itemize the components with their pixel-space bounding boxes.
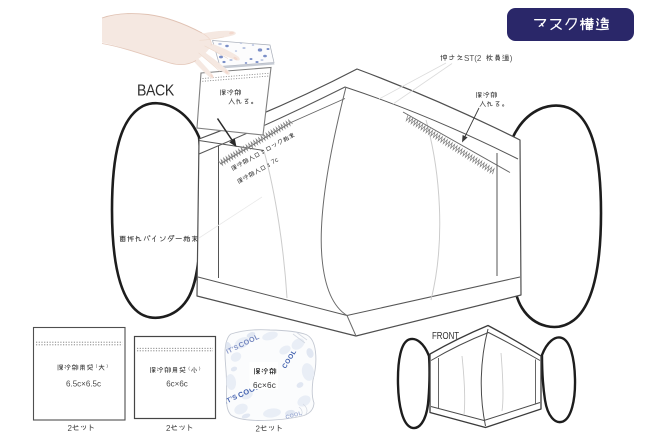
svg-text:ST(2: ST(2 [464, 54, 482, 63]
svg-text:6.5c×6.5c: 6.5c×6.5c [66, 380, 101, 389]
svg-text:BACK: BACK [137, 82, 174, 100]
svg-text:2: 2 [256, 425, 261, 434]
svg-text:2: 2 [68, 424, 73, 433]
svg-text:2: 2 [166, 424, 171, 433]
svg-text:): ) [510, 54, 513, 63]
svg-text:FRONT: FRONT [432, 330, 459, 341]
svg-text:6c×6c: 6c×6c [166, 379, 188, 388]
svg-text:6c×6c: 6c×6c [253, 381, 276, 390]
